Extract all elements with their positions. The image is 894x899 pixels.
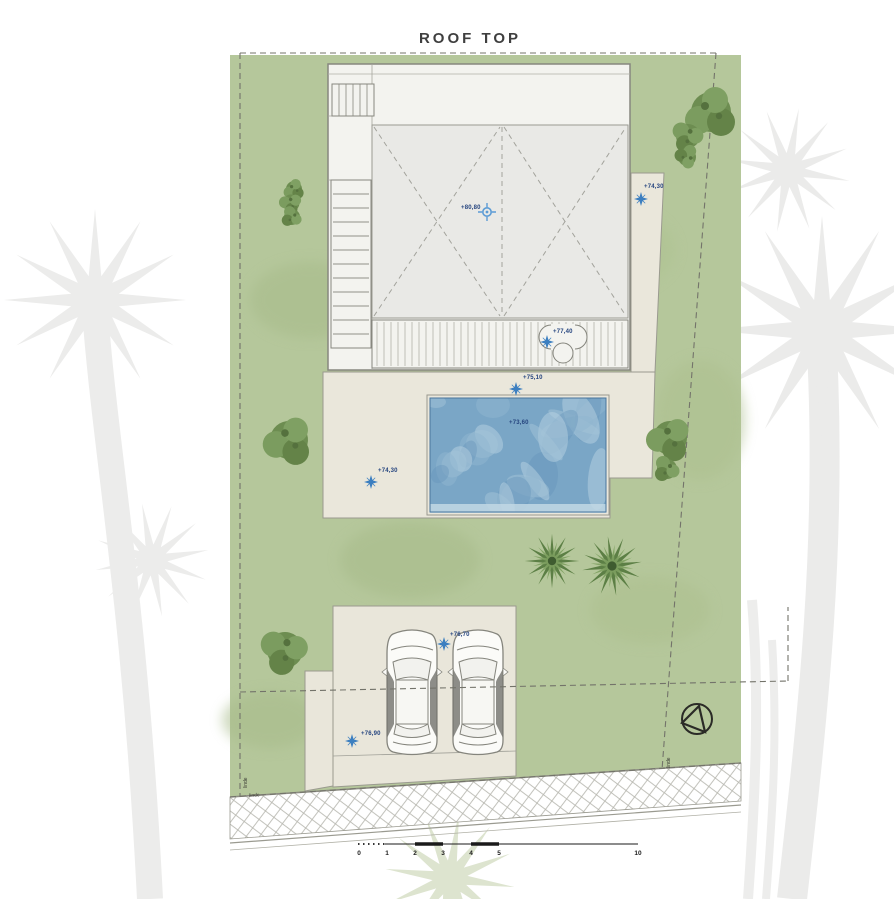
site-plan-drawing <box>0 0 894 899</box>
scale-number: 5 <box>497 850 501 857</box>
boundary-label: linde <box>249 792 260 799</box>
scale-number: 3 <box>441 850 445 857</box>
star-icon <box>364 475 379 490</box>
scale-number: 4 <box>469 850 473 857</box>
elevation-label: +74,30 <box>378 468 398 474</box>
scale-number: 10 <box>634 850 641 857</box>
boundary-label: linde <box>243 777 249 788</box>
palm-watermark-trunks <box>748 600 774 899</box>
elevation-label: +76,70 <box>450 632 470 638</box>
elevation-label: +75,10 <box>523 375 543 381</box>
star-icon <box>437 637 452 652</box>
pergola-deck <box>372 320 628 368</box>
scale-number: 2 <box>413 850 417 857</box>
boundary-label: linde <box>666 757 672 768</box>
elevation-label: +77,40 <box>553 329 573 335</box>
elevation-label: +76,90 <box>361 731 381 737</box>
site-plan-canvas: ROOF TOP +80,80+74,30+77,40+75,10+73,60+… <box>0 0 894 899</box>
hip-roof <box>372 125 628 318</box>
star-icon <box>345 734 360 749</box>
car-right <box>448 630 508 755</box>
driveway-annex <box>305 671 333 791</box>
palm-watermark-left <box>4 209 225 899</box>
scale-number: 1 <box>385 850 389 857</box>
scale-number: 0 <box>357 850 361 857</box>
swimming-pool <box>426 380 625 525</box>
car-left <box>382 630 442 755</box>
page-title: ROOF TOP <box>419 30 521 47</box>
star-icon <box>540 335 555 350</box>
louver-screen <box>331 180 371 348</box>
elevation-label: +73,60 <box>509 420 529 426</box>
star-icon <box>634 192 649 207</box>
stair-box <box>332 84 374 116</box>
elevation-label: +74,30 <box>644 184 664 190</box>
elevation-label: +80,80 <box>461 205 481 211</box>
star-icon <box>509 382 524 397</box>
